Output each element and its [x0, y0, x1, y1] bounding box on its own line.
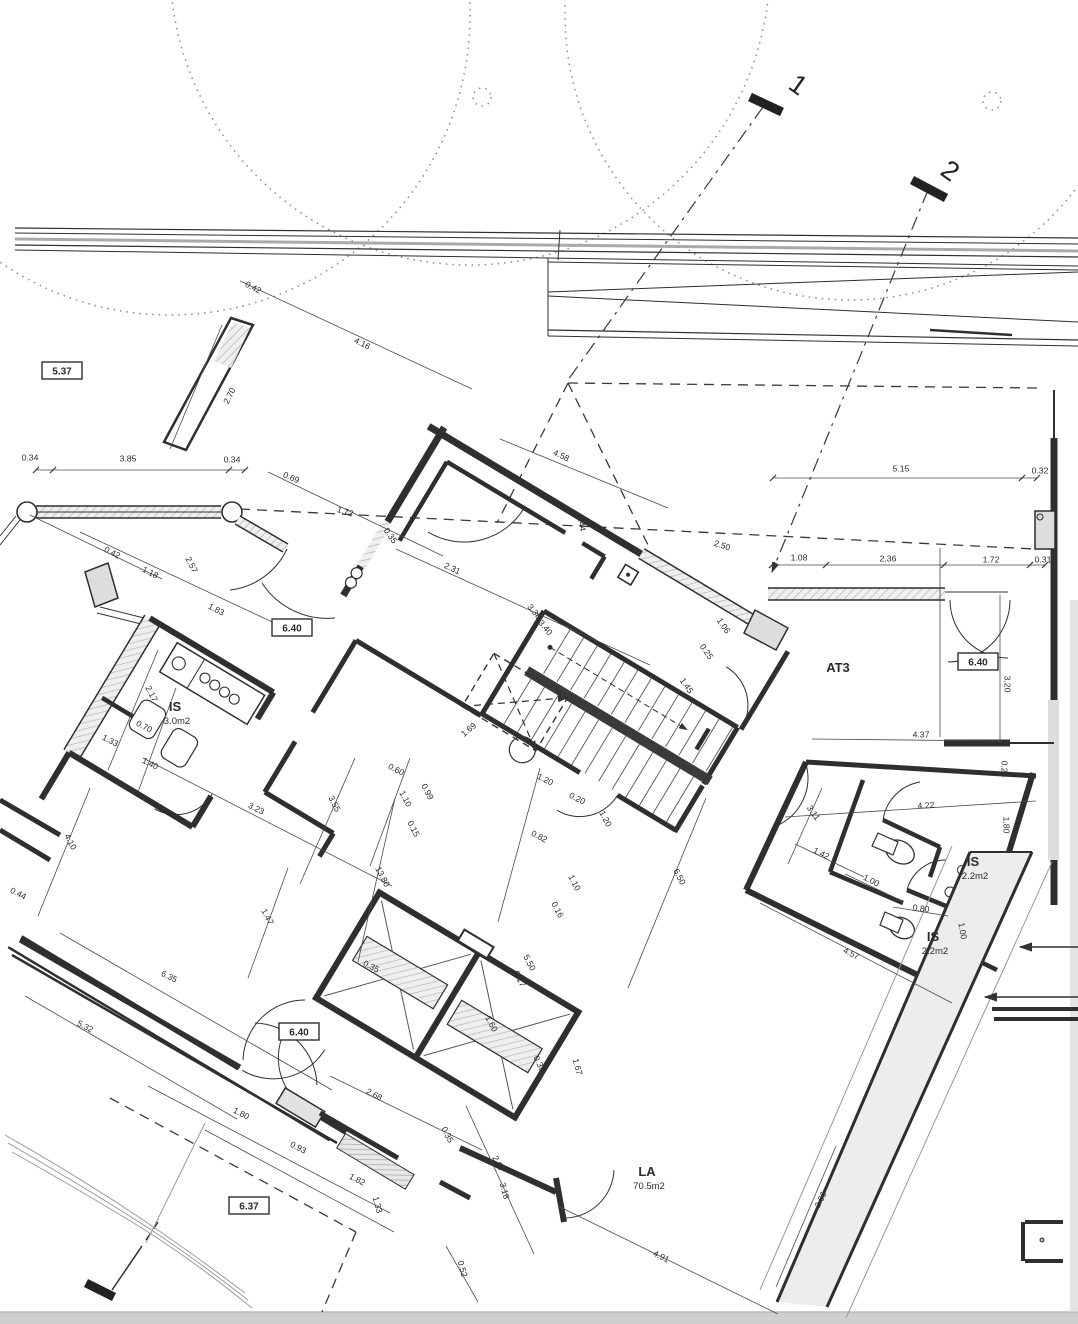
window-band-left	[0, 502, 288, 626]
dimension-label: 0.16	[549, 900, 566, 920]
dimension-label: 0.31	[1035, 554, 1052, 564]
boxed-elevation-label: 5.37	[42, 362, 82, 379]
door-arc	[703, 667, 765, 729]
building-core-rotated	[0, 345, 803, 1220]
stairwell	[459, 572, 764, 870]
room-area: 3.0m2	[164, 716, 190, 727]
dimension-label: 1.82	[348, 1171, 368, 1188]
door-arc	[883, 782, 920, 820]
dimension-label: 0.82	[530, 828, 550, 845]
dimension-label: 1.67	[571, 1057, 585, 1076]
section-mark-bar-2	[912, 180, 946, 198]
dimension-label: 5.32	[76, 1018, 96, 1035]
door-arc	[907, 860, 946, 890]
dimension-label: 1.10	[566, 873, 583, 893]
dimension-label: 3.20	[1003, 676, 1013, 693]
floorplan-sheet: 0.424.162.700.343.850.340.691.720.352.31…	[0, 0, 1078, 1324]
la-wing-walls	[460, 1148, 614, 1222]
dimension-label: 1.08	[791, 552, 808, 562]
dimension-label: 4.91	[652, 1248, 672, 1265]
dimension-label: 4.37	[913, 729, 930, 739]
dimension-label: 0.24	[1000, 761, 1010, 778]
dimension-label: 5.15	[893, 463, 910, 473]
dimension-label: 0.52	[456, 1259, 470, 1278]
dimension-label: 1.72	[336, 504, 355, 519]
street-walls-right	[985, 947, 1078, 1261]
dimension-label: 1.06	[715, 616, 733, 636]
door-arc	[950, 600, 1008, 658]
dimension-label: 2.68	[365, 1086, 385, 1103]
dimension-label: 0.34	[22, 452, 39, 462]
dimension-label: 3.40	[536, 618, 555, 637]
dimension-label: 4.10	[62, 832, 79, 852]
small-box-bottom-right	[1023, 1222, 1063, 1261]
dimension-label: 2.36	[880, 553, 897, 563]
section-marker-number: 1	[783, 68, 813, 101]
room-label: AT3	[826, 660, 850, 675]
dimension-label: 13.80	[373, 865, 392, 889]
small-dotted-circle	[473, 88, 491, 106]
dimension-label: 0.35	[439, 1125, 456, 1145]
dimension-label: 2.50	[713, 538, 732, 553]
dimension-label: 0.15	[405, 819, 422, 839]
dimension-label: 6.35	[160, 968, 180, 985]
dimension-label: 4.16	[353, 335, 373, 352]
section-mark-bar-1	[750, 97, 782, 112]
boxed-label-text: 6.37	[239, 1202, 259, 1213]
door-arc	[564, 1170, 614, 1218]
dimension-label: 2.31	[443, 560, 463, 576]
boxed-label-text: 5.37	[52, 367, 72, 378]
dimension-label: 1.42	[812, 845, 832, 862]
dimension-label: 1.72	[983, 554, 1000, 564]
column-round	[17, 502, 37, 522]
dimension-label: 0.34	[224, 454, 241, 464]
dimension-label: 1.83	[207, 601, 227, 618]
dimension-label: 1.40	[141, 755, 161, 772]
stair-up-arrow	[550, 647, 687, 729]
dimension-label: 1.47	[259, 907, 276, 927]
dimension-label: 2.57	[183, 555, 200, 575]
room-name: IS	[967, 854, 980, 869]
boxed-label-text: 6.40	[289, 1028, 309, 1039]
urinal	[159, 726, 201, 770]
dimension-label: 1.20	[597, 809, 614, 829]
dimension-label: 4.22	[917, 800, 935, 811]
dimension-label: 0.32	[1032, 465, 1049, 475]
room-label: LA70.5m2	[633, 1164, 665, 1192]
boxed-elevation-label: 6.40	[958, 653, 998, 670]
dimension-label: 1.10	[397, 789, 414, 809]
dimension-label: 0.42	[244, 279, 264, 296]
boxed-label-text: 6.40	[282, 624, 302, 635]
dimension-label: 1.33	[101, 732, 121, 749]
dimension-label: 3.11	[805, 803, 823, 822]
boxed-elevation-label: 6.37	[229, 1197, 269, 1214]
room-name: IS	[169, 699, 182, 714]
dimension-label: 1.69	[459, 720, 478, 739]
strip-building	[164, 318, 253, 450]
boxed-elevation-label: 6.40	[279, 1023, 319, 1040]
dimension-label: 1.80	[1002, 817, 1012, 834]
dimension-label: 1.80	[232, 1105, 252, 1122]
small-dotted-circle	[983, 92, 1001, 110]
boxed-label-text: 6.40	[968, 658, 988, 669]
room-area: 2.2m2	[962, 871, 988, 882]
column-rect-hatched	[85, 563, 118, 607]
dimension-label: 0.80	[912, 902, 930, 914]
dimension-label: 0.44	[9, 885, 29, 902]
bottom-left-walls	[0, 800, 470, 1308]
room-label: IS3.0m2	[164, 699, 190, 727]
floorplan-svg: 0.424.162.700.343.850.340.691.720.352.31…	[0, 0, 1078, 1324]
dimension-label: 3.23	[247, 800, 267, 817]
dimension-label: 0.44	[575, 514, 588, 532]
dimension-label: 1.33	[371, 1195, 385, 1214]
dimension-label: 3.18	[498, 1181, 512, 1200]
room-name: AT3	[826, 660, 850, 675]
road-band	[15, 228, 1078, 346]
dimension-label: 0.25	[698, 642, 716, 662]
dimension-label: 5.50	[521, 953, 538, 973]
window-band-diagonal	[235, 516, 288, 552]
column-rect-hatched	[1035, 511, 1055, 549]
ramp-hatched	[337, 1133, 414, 1189]
dimension-label: 0.17	[511, 969, 528, 989]
room-area: 2.2m2	[922, 946, 948, 957]
section-marker-number: 2	[935, 154, 965, 187]
dimension-label: 0.20	[568, 790, 588, 807]
dimension-label: 0.93	[289, 1139, 309, 1156]
urinal	[127, 698, 169, 742]
room-name: LA	[638, 1164, 656, 1179]
dimension-label: 1.20	[536, 771, 556, 788]
elevator-pit	[353, 936, 448, 1008]
dimension-label: 3.55	[326, 794, 343, 814]
elevator-shafts	[313, 881, 587, 1119]
dimension-label: 0.99	[419, 782, 436, 802]
section-mark-bar-bottom	[86, 1283, 114, 1297]
room-name: IS	[927, 929, 940, 944]
dimension-label: 1.18	[141, 564, 161, 581]
boxed-elevation-label: 6.40	[272, 619, 312, 636]
dimension-label: 3.85	[120, 453, 137, 463]
entrance-door-arcs	[230, 549, 335, 618]
dimension-label: 2.70	[221, 386, 238, 406]
room-area: 70.5m2	[633, 1181, 665, 1192]
elevator-pit	[447, 1000, 542, 1072]
